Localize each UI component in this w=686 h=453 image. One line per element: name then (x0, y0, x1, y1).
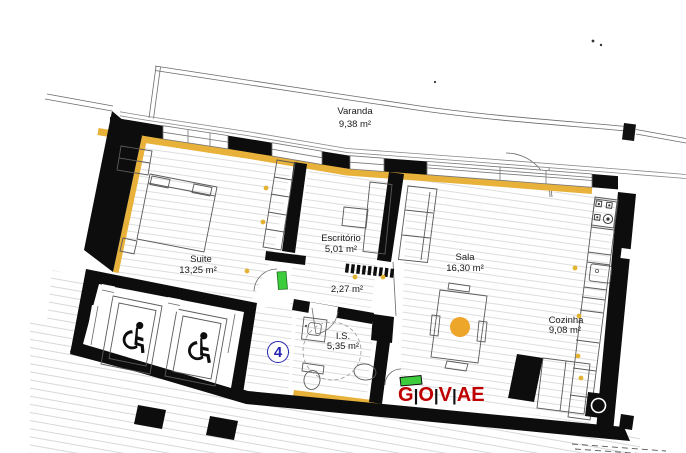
svg-text:9,38 m²: 9,38 m² (339, 119, 371, 130)
svg-text:2,27 m²: 2,27 m² (331, 284, 363, 295)
svg-text:Suite: Suite (190, 254, 212, 265)
svg-text:Varanda: Varanda (337, 106, 373, 117)
svg-text:5,01 m²: 5,01 m² (325, 244, 357, 255)
svg-text:16,30 m²: 16,30 m² (446, 263, 484, 274)
svg-text:9,08 m²: 9,08 m² (549, 325, 581, 336)
svg-text:Escritório: Escritório (321, 233, 361, 244)
svg-text:Sala: Sala (455, 252, 475, 263)
svg-text:4: 4 (274, 344, 283, 361)
svg-text:5,35 m²: 5,35 m² (327, 341, 359, 352)
svg-text:13,25 m²: 13,25 m² (179, 265, 217, 276)
svg-text:G|O|V|AE: G|O|V|AE (398, 384, 485, 406)
